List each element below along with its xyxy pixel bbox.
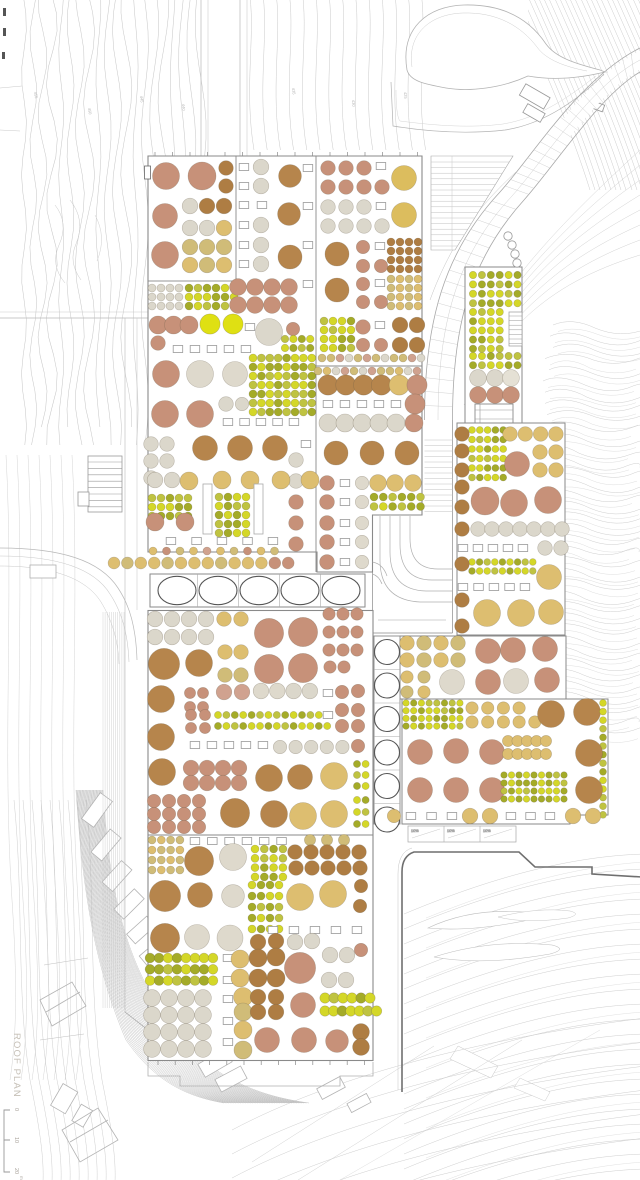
svg-text:10%: 10% <box>411 829 419 833</box>
svg-text:440: 440 <box>181 104 187 112</box>
svg-text:10%: 10% <box>447 829 455 833</box>
svg-text:m: m <box>19 1176 24 1180</box>
svg-text:430: 430 <box>351 100 357 108</box>
svg-text:10%: 10% <box>483 829 491 833</box>
svg-text:425: 425 <box>403 92 408 100</box>
svg-text:20: 20 <box>13 1168 19 1174</box>
svg-text:0: 0 <box>13 1108 19 1111</box>
svg-text:10: 10 <box>13 1137 19 1143</box>
svg-text:ROOF PLAN: ROOF PLAN <box>11 1033 22 1098</box>
